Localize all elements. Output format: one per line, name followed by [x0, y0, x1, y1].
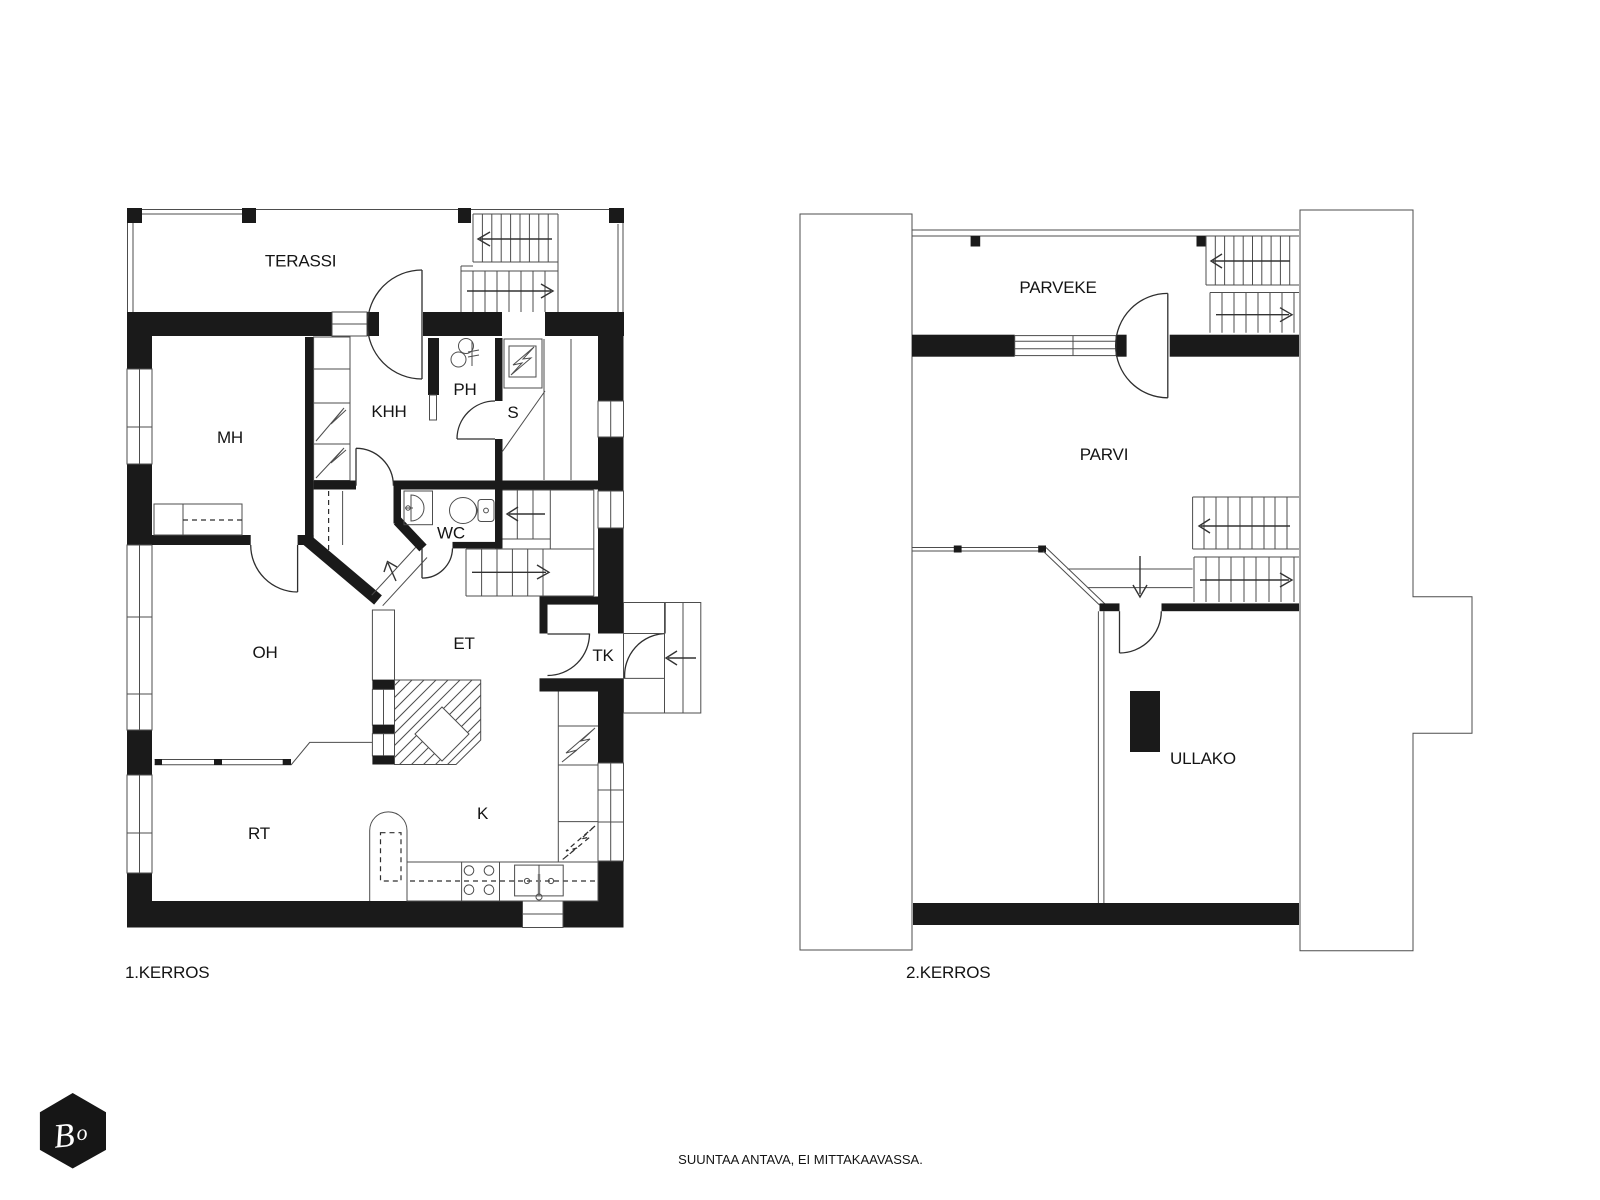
svg-text:SUUNTAA ANTAVA, EI MITTAKAAVAS: SUUNTAA ANTAVA, EI MITTAKAAVASSA.	[678, 1152, 923, 1167]
svg-text:B: B	[52, 1117, 77, 1156]
svg-text:2.KERROS: 2.KERROS	[906, 963, 990, 982]
svg-text:RT: RT	[248, 824, 270, 843]
svg-text:PARVI: PARVI	[1080, 445, 1128, 464]
svg-text:KHH: KHH	[371, 402, 406, 421]
svg-text:S: S	[507, 403, 518, 422]
svg-text:PH: PH	[453, 380, 476, 399]
svg-text:1.KERROS: 1.KERROS	[125, 963, 209, 982]
svg-text:ULLAKO: ULLAKO	[1170, 749, 1236, 768]
svg-text:PARVEKE: PARVEKE	[1019, 278, 1096, 297]
svg-text:OH: OH	[252, 643, 277, 662]
svg-text:WC: WC	[437, 524, 465, 543]
svg-text:ET: ET	[453, 634, 474, 653]
svg-text:TERASSI: TERASSI	[265, 252, 336, 271]
svg-text:MH: MH	[217, 428, 243, 447]
svg-text:TK: TK	[592, 646, 614, 665]
svg-text:K: K	[477, 804, 489, 823]
